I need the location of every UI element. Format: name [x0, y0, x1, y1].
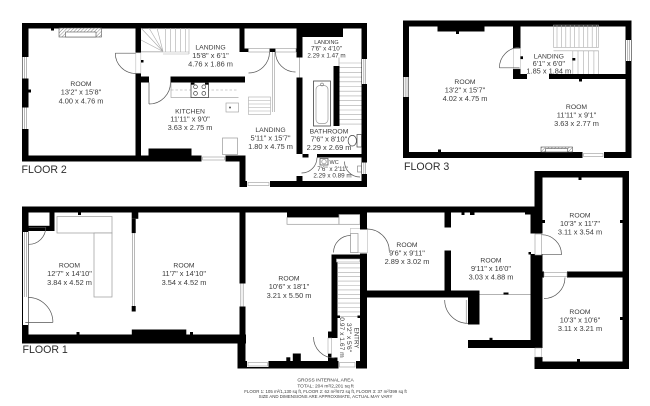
svg-text:3'2" x 5'6": 3'2" x 5'6" [345, 323, 352, 353]
svg-text:7'6" x 8'10": 7'6" x 8'10" [311, 134, 348, 143]
svg-text:13'2" x 15'7": 13'2" x 15'7" [445, 86, 486, 95]
svg-text:11'7" x 14'10": 11'7" x 14'10" [162, 269, 206, 278]
svg-text:3.54 x 4.52 m: 3.54 x 4.52 m [162, 278, 207, 287]
svg-text:4.02 x 4.75 m: 4.02 x 4.75 m [443, 94, 488, 103]
svg-text:11'11" x 9'0": 11'11" x 9'0" [170, 114, 210, 123]
svg-text:3.84 x 4.52 m: 3.84 x 4.52 m [47, 278, 92, 287]
svg-text:GROSS INTERNAL AREA: GROSS INTERNAL AREA [297, 377, 354, 383]
svg-text:FLOOR 2: FLOOR 2 [22, 164, 67, 176]
svg-text:10'3" x 11'7": 10'3" x 11'7" [560, 219, 600, 228]
svg-text:ENTRY: ENTRY [353, 328, 360, 349]
svg-text:3.63 x 2.75 m: 3.63 x 2.75 m [168, 123, 213, 132]
svg-text:SIZE AND DIMENSIONS ARE APPROX: SIZE AND DIMENSIONS ARE APPROXIMATE, ACT… [259, 394, 393, 399]
svg-text:2.89 x 3.02 m: 2.89 x 3.02 m [385, 257, 430, 266]
svg-text:10'6" x 18'1": 10'6" x 18'1" [269, 282, 310, 291]
svg-text:3.63 x 2.77 m: 3.63 x 2.77 m [554, 119, 599, 128]
svg-text:9'11" x 16'0": 9'11" x 16'0" [471, 264, 511, 273]
svg-text:10'3" x 10'6": 10'3" x 10'6" [560, 316, 601, 325]
svg-text:1.80 x 4.75 m: 1.80 x 4.75 m [248, 142, 293, 151]
svg-text:4.00 x 4.76 m: 4.00 x 4.76 m [59, 96, 104, 105]
svg-text:4.76 x 1.86 m: 4.76 x 1.86 m [188, 60, 233, 69]
svg-text:FLOOR 3: FLOOR 3 [404, 161, 449, 173]
svg-text:2.29 x 2.69 m: 2.29 x 2.69 m [307, 143, 352, 152]
svg-text:3.21 x 5.50 m: 3.21 x 5.50 m [267, 291, 312, 300]
svg-text:3.11 x 3.21 m: 3.11 x 3.21 m [558, 324, 602, 333]
svg-text:9'6" x 9'11": 9'6" x 9'11" [389, 249, 425, 258]
svg-text:2.29 x 1.47 m: 2.29 x 1.47 m [307, 52, 345, 59]
svg-text:1.85 x 1.84 m: 1.85 x 1.84 m [526, 66, 571, 75]
svg-text:FLOOR 1: 105 m²/1,130 sq ft, F: FLOOR 1: 105 m²/1,130 sq ft, FLOOR 2: 62… [244, 389, 407, 394]
svg-text:0.97 x 1.67 m: 0.97 x 1.67 m [338, 317, 345, 358]
svg-text:13'2" x 15'8": 13'2" x 15'8" [61, 88, 102, 97]
svg-text:FLOOR 1: FLOOR 1 [23, 344, 68, 356]
svg-text:15'8" x 6'1": 15'8" x 6'1" [192, 51, 229, 60]
svg-text:11'11" x 9'1": 11'11" x 9'1" [557, 111, 597, 120]
svg-text:2.29 x 0.89 m: 2.29 x 0.89 m [313, 172, 351, 179]
svg-text:3.03 x 4.88 m: 3.03 x 4.88 m [469, 273, 514, 282]
svg-text:3.11 x 3.54 m: 3.11 x 3.54 m [558, 228, 602, 237]
svg-text:5'11" x 15'7": 5'11" x 15'7" [251, 133, 291, 142]
svg-text:12'7" x 14'10": 12'7" x 14'10" [47, 269, 92, 278]
